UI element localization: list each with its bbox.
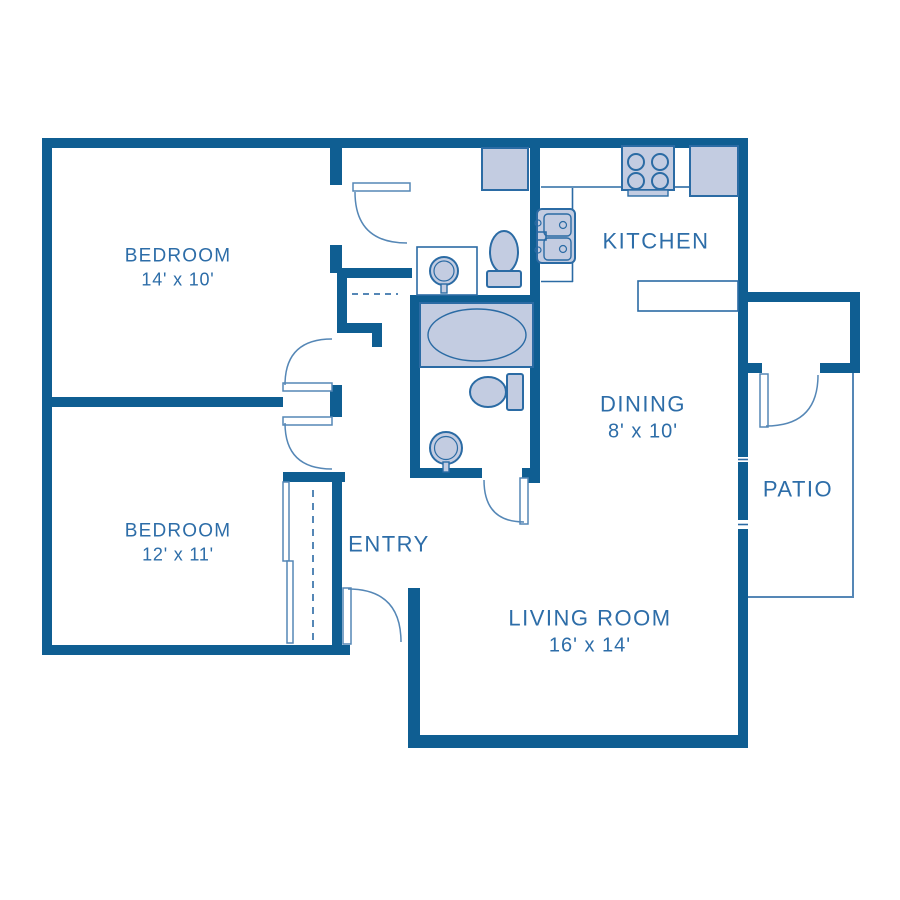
stove-burner-icon bbox=[652, 173, 668, 189]
stove-front-panel bbox=[628, 190, 668, 196]
door-leaf bbox=[283, 417, 332, 425]
stove-burner-icon bbox=[652, 154, 668, 170]
door-swing-arc bbox=[285, 339, 332, 385]
bathroom2-fixtures bbox=[420, 303, 533, 472]
wall-patio-alcove-right bbox=[850, 292, 860, 373]
door-swing-arc bbox=[285, 423, 332, 469]
door-swing-arc bbox=[484, 480, 524, 522]
room-label-patio: PATIO bbox=[763, 474, 833, 503]
wall-bedroom2-bottom bbox=[42, 645, 350, 655]
wall-linen-top bbox=[337, 268, 412, 278]
toilet-tank bbox=[487, 271, 521, 287]
room-name: KITCHEN bbox=[602, 226, 709, 255]
room-label-dining: DINING 8' x 10' bbox=[600, 389, 686, 444]
wall-patio-stub-left bbox=[748, 363, 762, 373]
stove-burner-icon bbox=[628, 173, 644, 189]
breakfast-bar bbox=[638, 281, 738, 311]
room-label-bedroom-1: BEDROOM 14' x 10' bbox=[125, 244, 232, 293]
toilet-tank bbox=[507, 374, 523, 410]
wall-living-bottom bbox=[408, 735, 748, 748]
toilet-icon bbox=[487, 231, 521, 287]
door-leaf bbox=[760, 374, 768, 427]
floor-plan: BEDROOM 14' x 10' BEDROOM 12' x 11' KITC… bbox=[0, 0, 900, 900]
closet-door-panel bbox=[287, 561, 293, 643]
wall-entry-west bbox=[332, 472, 342, 655]
door-leaf bbox=[353, 183, 410, 191]
wall-linen-stub bbox=[372, 333, 382, 347]
door-leaf bbox=[283, 383, 332, 391]
door-bathroom2 bbox=[484, 478, 528, 524]
door-patio bbox=[760, 374, 818, 427]
room-label-bedroom-2: BEDROOM 12' x 11' bbox=[125, 519, 232, 568]
room-name: BEDROOM bbox=[125, 244, 232, 269]
wall-outer-east bbox=[738, 138, 748, 748]
toilet-bowl bbox=[470, 377, 506, 407]
room-label-living-room: LIVING ROOM 16' x 14' bbox=[508, 603, 671, 658]
room-name: PATIO bbox=[763, 474, 833, 503]
room-name: DINING bbox=[600, 389, 686, 418]
closet-door-panel bbox=[283, 482, 289, 561]
door-swing-arc bbox=[348, 589, 401, 642]
room-dimensions: 16' x 14' bbox=[508, 632, 671, 658]
door-leaf bbox=[520, 478, 528, 524]
room-name: LIVING ROOM bbox=[508, 603, 671, 632]
bathtub-icon bbox=[420, 303, 533, 367]
faucet-icon bbox=[441, 284, 447, 293]
toilet-bowl bbox=[490, 231, 518, 273]
room-name: BEDROOM bbox=[125, 519, 232, 544]
bathtub-basin bbox=[428, 309, 526, 361]
faucet-icon bbox=[443, 462, 449, 472]
bathroom1-fixtures bbox=[417, 148, 528, 295]
wall-hall-stub-top bbox=[330, 148, 342, 185]
stove-burner-icon bbox=[628, 154, 644, 170]
wall-bedroom-divider bbox=[42, 397, 283, 407]
round-sink-icon bbox=[430, 432, 462, 472]
kitchen-sink-icon bbox=[535, 209, 575, 263]
door-bedroom1 bbox=[283, 339, 332, 391]
wall-patio-alcove-top bbox=[748, 292, 860, 302]
wall-outer-left bbox=[42, 138, 52, 655]
room-dimensions: 12' x 11' bbox=[125, 544, 232, 568]
room-label-kitchen: KITCHEN bbox=[602, 226, 709, 255]
door-bathroom1 bbox=[353, 183, 410, 243]
floor-plan-canvas bbox=[0, 0, 900, 900]
room-label-entry: ENTRY bbox=[348, 529, 430, 558]
toilet-icon bbox=[470, 374, 523, 410]
wall-patio-stub-right bbox=[820, 363, 850, 373]
refrigerator-icon bbox=[690, 146, 738, 196]
wall-linen-bottom bbox=[337, 323, 382, 333]
room-dimensions: 14' x 10' bbox=[125, 269, 232, 293]
wall-bath-west bbox=[410, 295, 420, 478]
door-leaf bbox=[343, 588, 351, 644]
shower-closet bbox=[482, 148, 528, 190]
door-swing-arc bbox=[766, 375, 818, 426]
door-bedroom2 bbox=[283, 417, 332, 469]
door-swing-arc bbox=[355, 192, 407, 243]
room-name: ENTRY bbox=[348, 529, 430, 558]
room-dimensions: 8' x 10' bbox=[600, 418, 686, 444]
door-main-entry bbox=[343, 588, 401, 644]
wall-living-west bbox=[408, 588, 420, 748]
